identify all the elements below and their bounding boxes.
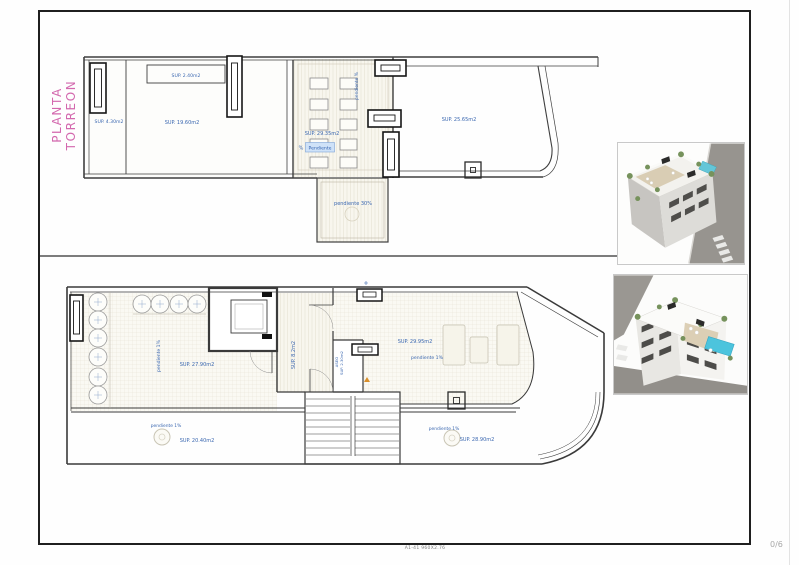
- area-label-left-terrace: SUP. 27.90m2: [180, 362, 215, 368]
- roof-drain: [465, 162, 481, 178]
- aerial-render-top: [617, 142, 745, 265]
- aerial-render-top-image: [618, 143, 744, 264]
- area-label-hall: SUP. 8.2m2: [291, 341, 297, 369]
- area-label-right-terrace: SUP. 25.65m2: [442, 117, 477, 123]
- slope-label-right-terrace: pendiente 1%: [411, 355, 444, 361]
- slope-label-30: pendiente 30%: [334, 201, 372, 207]
- level-mark-blue: [364, 281, 368, 285]
- area-label-center-room: SUP. 19.60m2: [165, 120, 200, 126]
- area-label-right-terrace: SUP. 29.95m2: [398, 339, 433, 345]
- slope-tag-symbol: %: [299, 146, 304, 152]
- slope-label-left-terrace: pendiente 1%: [156, 339, 162, 372]
- area-label-roof-strip: SUP. 2.40m2: [172, 73, 201, 79]
- area-label-aseo: SUP. 2.30m2: [339, 350, 344, 374]
- area-label-left-room: SUP. 4.30m2: [95, 119, 124, 125]
- slope-label-vertical: pendiente %: [354, 72, 360, 100]
- sheet-footer-note: A1-41 960X2.76: [370, 546, 480, 551]
- drawing-sheet: PLANTA TORREON: [0, 0, 799, 565]
- page-edge-line: [789, 0, 790, 565]
- page-indicator: 0/6: [770, 540, 783, 549]
- slope-label-front-left: pendiente 1%: [151, 423, 182, 429]
- slope-tag-text: Pendiente: [309, 146, 332, 152]
- area-label-panel-area: SUP. 29.35m2: [305, 131, 340, 137]
- aerial-render-bottom-image: [614, 275, 747, 394]
- aerial-render-bottom: [613, 274, 748, 395]
- area-label-front-right: SUP. 28.90m2: [460, 437, 495, 443]
- slope-label-front-right: pendiente 1%: [429, 426, 460, 432]
- area-label-front-left: SUP. 20.40m2: [180, 438, 215, 444]
